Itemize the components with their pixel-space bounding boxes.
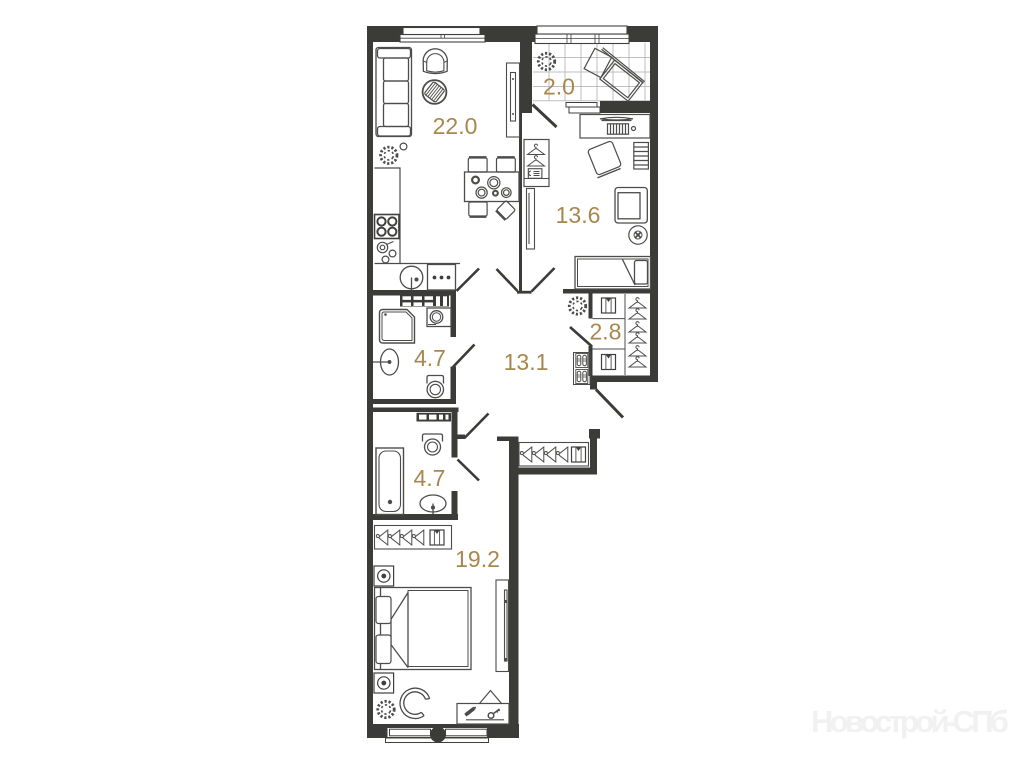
svg-text:4.7: 4.7	[414, 465, 446, 491]
svg-text:Новострой-СПб: Новострой-СПб	[811, 704, 1009, 739]
svg-text:13.1: 13.1	[504, 349, 549, 375]
svg-text:2.8: 2.8	[590, 319, 622, 345]
svg-text:19.2: 19.2	[455, 546, 500, 572]
svg-text:13.6: 13.6	[556, 202, 601, 228]
svg-text:2.0: 2.0	[543, 74, 575, 100]
svg-text:22.0: 22.0	[433, 113, 478, 139]
svg-text:4.7: 4.7	[414, 345, 446, 371]
